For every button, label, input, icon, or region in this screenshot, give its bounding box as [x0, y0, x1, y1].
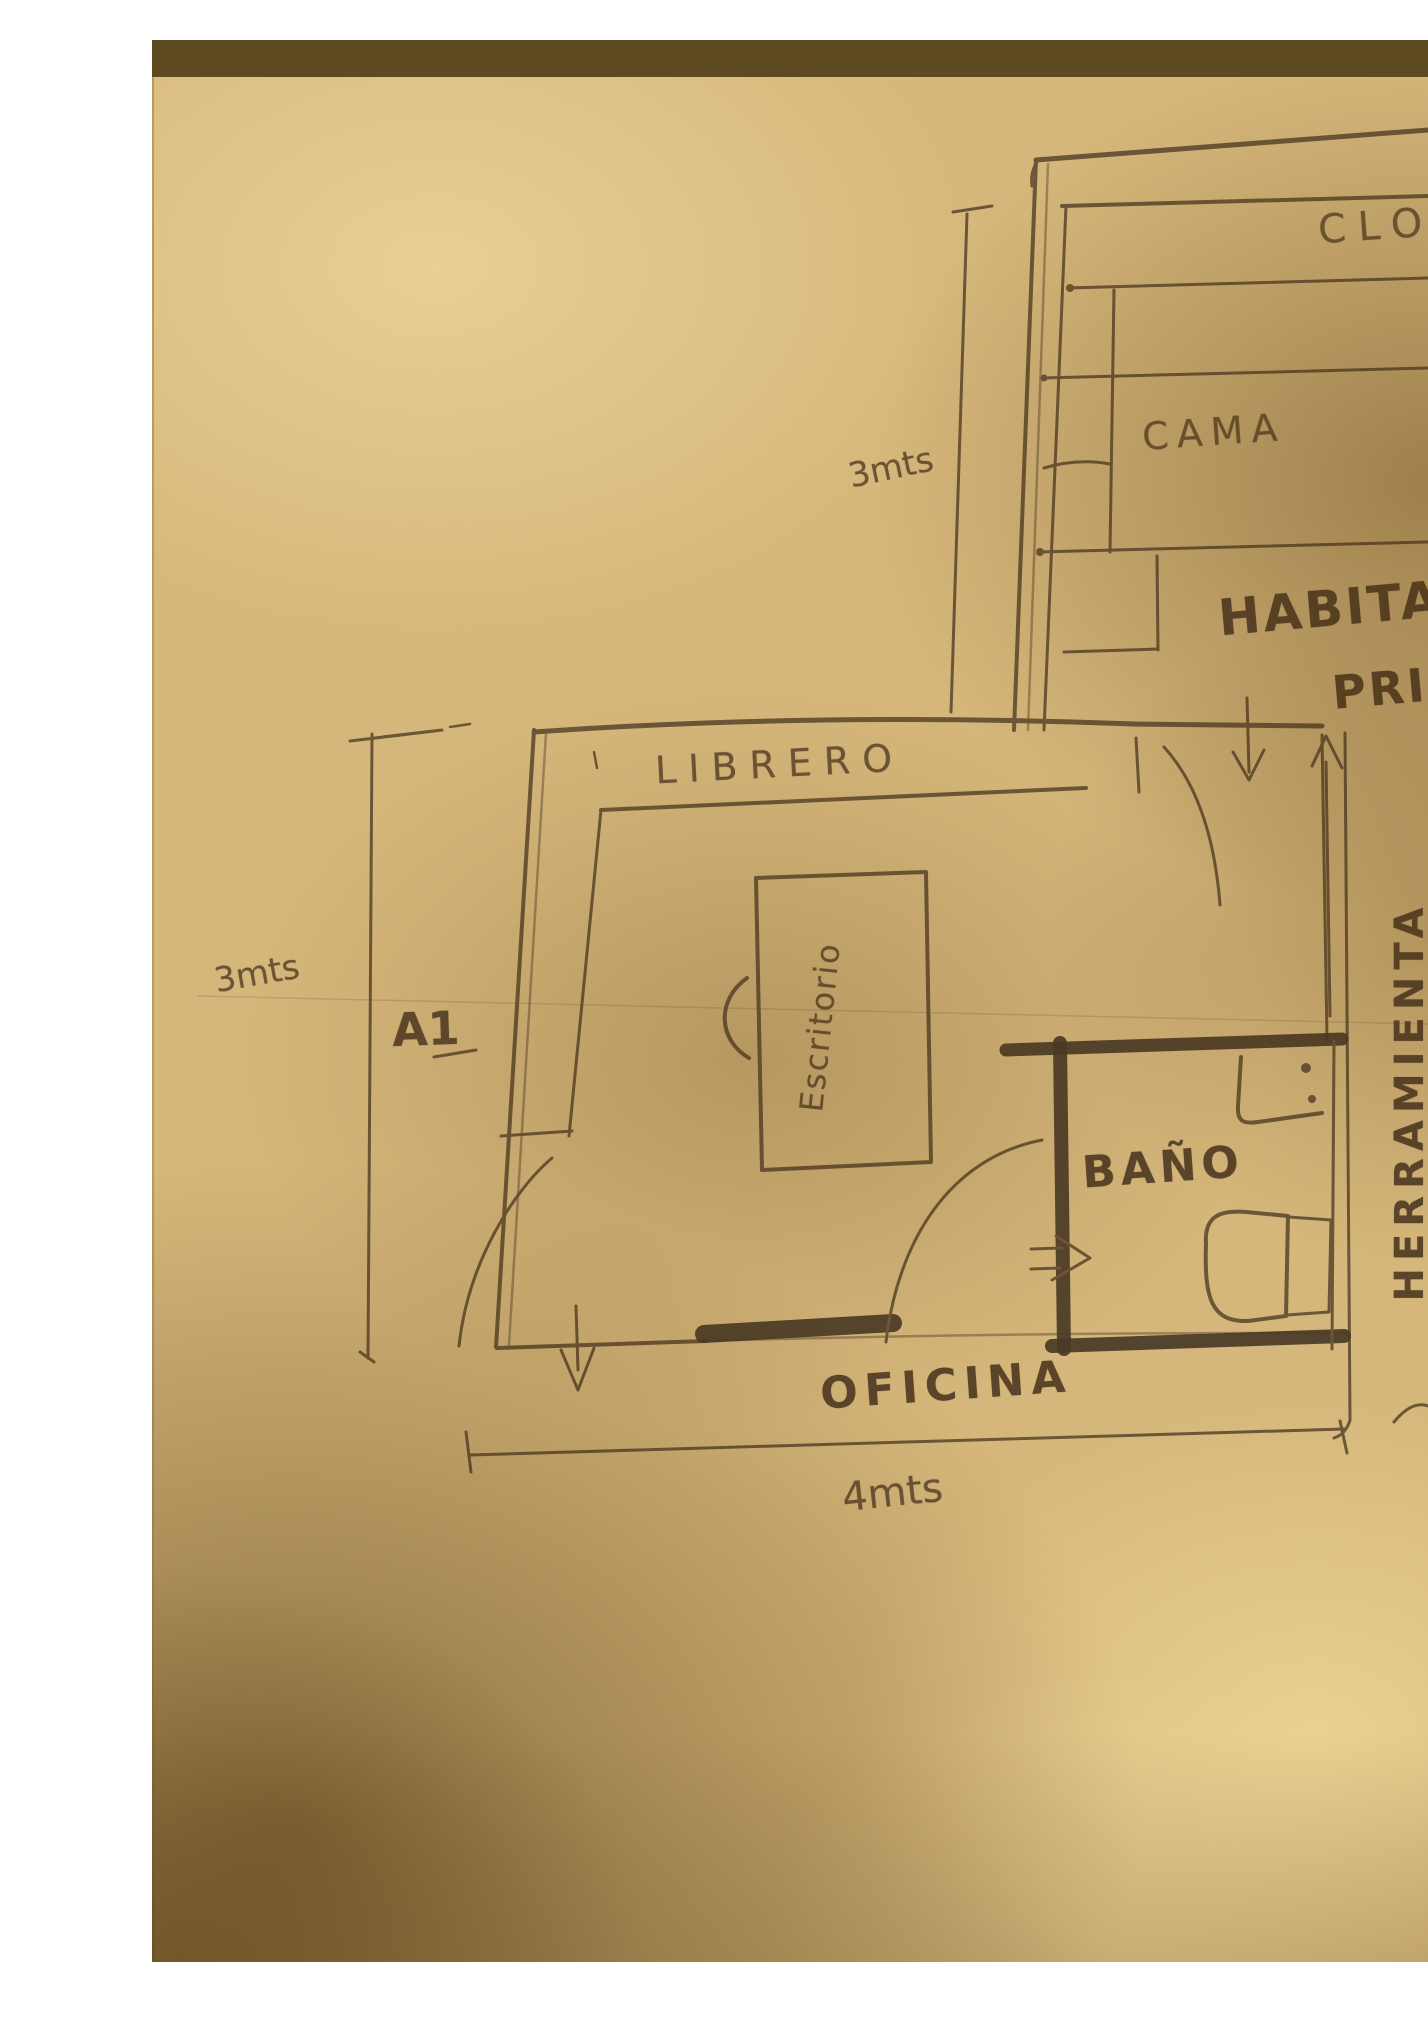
office-door-threshold	[704, 1323, 893, 1334]
page-background: CLOS CAMA HABITAC PRIN 3mts LIBRERO 3mts…	[0, 0, 1428, 2018]
sheet-label: A1	[391, 1001, 460, 1057]
office-walls	[383, 724, 1345, 1348]
floor-plan-drawing	[0, 0, 1428, 2018]
office-door-arcs	[459, 1140, 1042, 1346]
label-tools-rack: HERRAMIENTA	[1387, 871, 1428, 1331]
bedroom-entry-arrow-down-icon	[1233, 698, 1264, 780]
label-bedroom-line2: PRIN	[1330, 654, 1428, 720]
dimension-line-bedroom-depth	[951, 206, 992, 712]
toilet-icon	[1206, 1212, 1331, 1321]
sink-icon	[1238, 1057, 1322, 1123]
dimension-line-office-width	[466, 1421, 1347, 1472]
bedroom-walls	[534, 130, 1428, 732]
office-exit-arrow-down-icon	[561, 1306, 594, 1390]
closet-shelf-lines	[1066, 278, 1428, 292]
bathroom-walls	[1006, 1039, 1344, 1349]
bedroom-door-arc	[1136, 738, 1220, 905]
